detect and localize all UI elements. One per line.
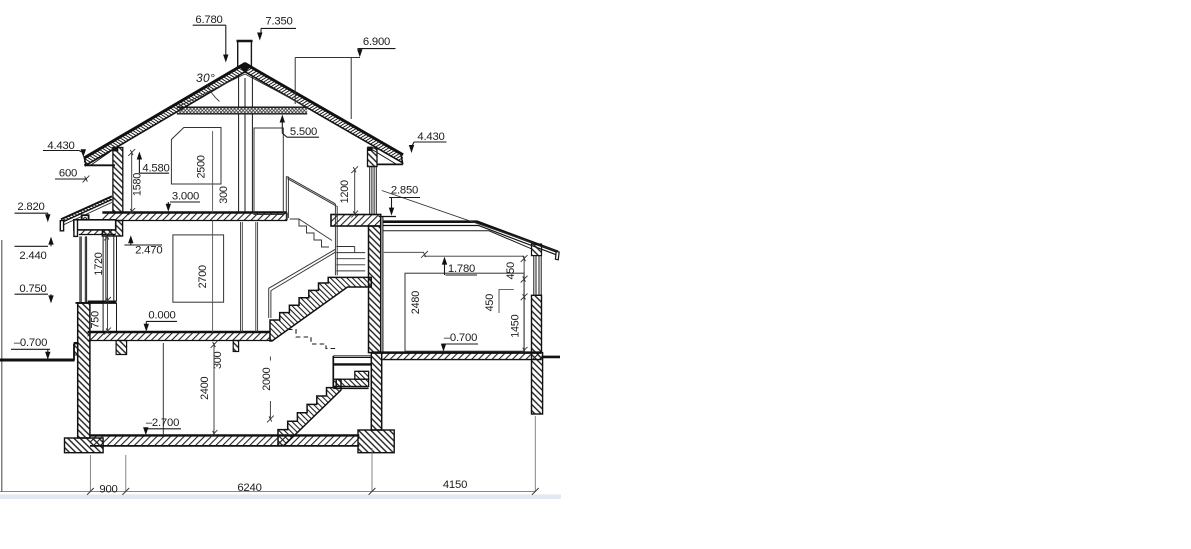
svg-text:600: 600 [59, 168, 77, 180]
svg-text:–2.700: –2.700 [146, 417, 179, 429]
svg-text:0.000: 0.000 [148, 309, 175, 321]
svg-text:2500: 2500 [196, 155, 208, 178]
svg-text:4.430: 4.430 [417, 131, 444, 143]
svg-text:2.820: 2.820 [17, 201, 44, 213]
svg-text:–0.700: –0.700 [444, 332, 477, 344]
svg-text:6.900: 6.900 [363, 36, 390, 48]
svg-text:6240: 6240 [237, 482, 261, 494]
svg-text:5.500: 5.500 [290, 126, 317, 138]
svg-text:1720: 1720 [93, 252, 105, 275]
svg-text:2000: 2000 [261, 367, 273, 390]
svg-text:900: 900 [99, 484, 117, 496]
svg-text:300: 300 [218, 186, 230, 204]
svg-text:4150: 4150 [443, 479, 467, 491]
svg-text:2.470: 2.470 [135, 244, 162, 256]
svg-text:2700: 2700 [197, 265, 209, 288]
svg-text:2480: 2480 [410, 291, 422, 314]
svg-text:30°: 30° [196, 71, 215, 85]
svg-text:–0.700: –0.700 [14, 337, 47, 349]
svg-text:2.850: 2.850 [391, 185, 418, 197]
svg-text:3.000: 3.000 [172, 190, 199, 202]
svg-text:7.350: 7.350 [265, 16, 292, 28]
svg-text:750: 750 [90, 311, 102, 329]
svg-text:1200: 1200 [339, 180, 351, 203]
svg-text:1580: 1580 [132, 173, 144, 196]
svg-text:2400: 2400 [199, 377, 211, 400]
svg-text:1.780: 1.780 [448, 263, 475, 275]
svg-text:0.750: 0.750 [19, 283, 46, 295]
svg-text:1450: 1450 [510, 314, 522, 337]
svg-text:450: 450 [484, 294, 496, 312]
svg-text:450: 450 [505, 262, 517, 280]
svg-text:2.440: 2.440 [19, 250, 46, 262]
svg-text:6.780: 6.780 [195, 14, 222, 26]
svg-text:4.580: 4.580 [142, 162, 169, 174]
